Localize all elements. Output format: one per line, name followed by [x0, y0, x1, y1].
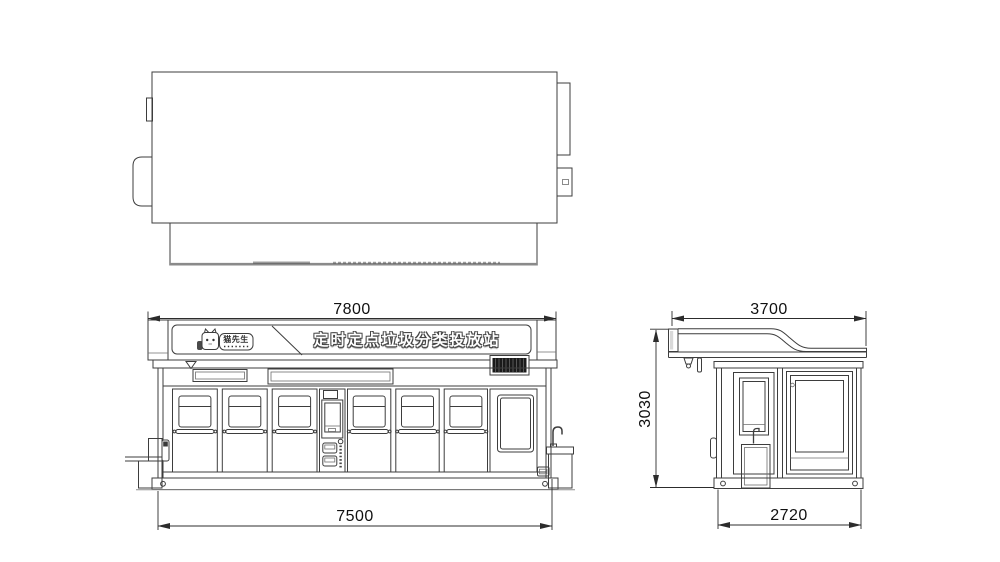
dim-side-height: [650, 329, 714, 487]
dim-front-roof-width-label: 7800: [312, 301, 392, 319]
door-handle: [276, 430, 314, 434]
chain-ring: [338, 439, 343, 444]
canopy-lamp-icon: [684, 358, 693, 368]
logo-cat-face-icon: [202, 333, 219, 350]
side-wall-handle: [711, 438, 717, 458]
side-roof-canopy: [669, 329, 867, 358]
sign-panel-long: [268, 369, 393, 384]
eave-clip-mark: [186, 362, 196, 369]
dim-side-body-depth-label: 2720: [749, 507, 829, 525]
door-handle: [226, 430, 264, 434]
left-step-bench: [125, 439, 162, 489]
side-window: [787, 372, 853, 475]
station-banner-title: 定时定点垃圾分类投放站: [294, 330, 520, 352]
brand-logo-label: 猫先生: [220, 335, 252, 344]
side-faucet-icon: [754, 429, 760, 444]
plan-left-bump: [133, 157, 152, 206]
faucet-icon: [551, 427, 563, 447]
top-view: [133, 72, 572, 265]
door-panel: [444, 389, 488, 472]
dim-side-height-label: 3030: [637, 374, 655, 444]
plan-right-box: [557, 168, 572, 196]
column-top-panel: [324, 391, 338, 399]
door-panel: [222, 389, 267, 472]
canopy-bracket: [698, 358, 702, 372]
door-handle: [176, 430, 214, 434]
side-base: [714, 478, 863, 489]
side-sink-cabinet: [742, 445, 771, 489]
left-post-device: [162, 440, 169, 461]
door-handle: [447, 430, 485, 434]
line-drawing: [0, 0, 1000, 562]
door-panel: [173, 389, 218, 472]
vent-grille: [490, 356, 529, 376]
front-base: [136, 478, 575, 490]
door-panel: [272, 389, 317, 472]
plan-outline: [152, 72, 557, 223]
door-handle: [399, 430, 437, 434]
blueprint-canvas: 7800 7500 3700 3030 2720 定时定点垃圾分类投放站 猫先生: [0, 0, 1000, 562]
dim-front-body-width-label: 7500: [315, 508, 395, 526]
plan-lower-extension: [170, 223, 537, 265]
side-door: [734, 373, 775, 475]
door-handle: [350, 430, 388, 434]
end-panel: [490, 389, 549, 476]
door-panel: [347, 389, 391, 472]
window-latch: [791, 383, 795, 387]
side-body: [714, 362, 863, 479]
side-view: [650, 311, 867, 529]
control-column: [320, 389, 346, 472]
plan-right-duct: [557, 83, 570, 155]
door-panel: [396, 389, 440, 472]
sign-panel-small: [193, 370, 247, 382]
screen: [325, 403, 341, 432]
dim-side-roof-depth-label: 3700: [729, 301, 809, 319]
